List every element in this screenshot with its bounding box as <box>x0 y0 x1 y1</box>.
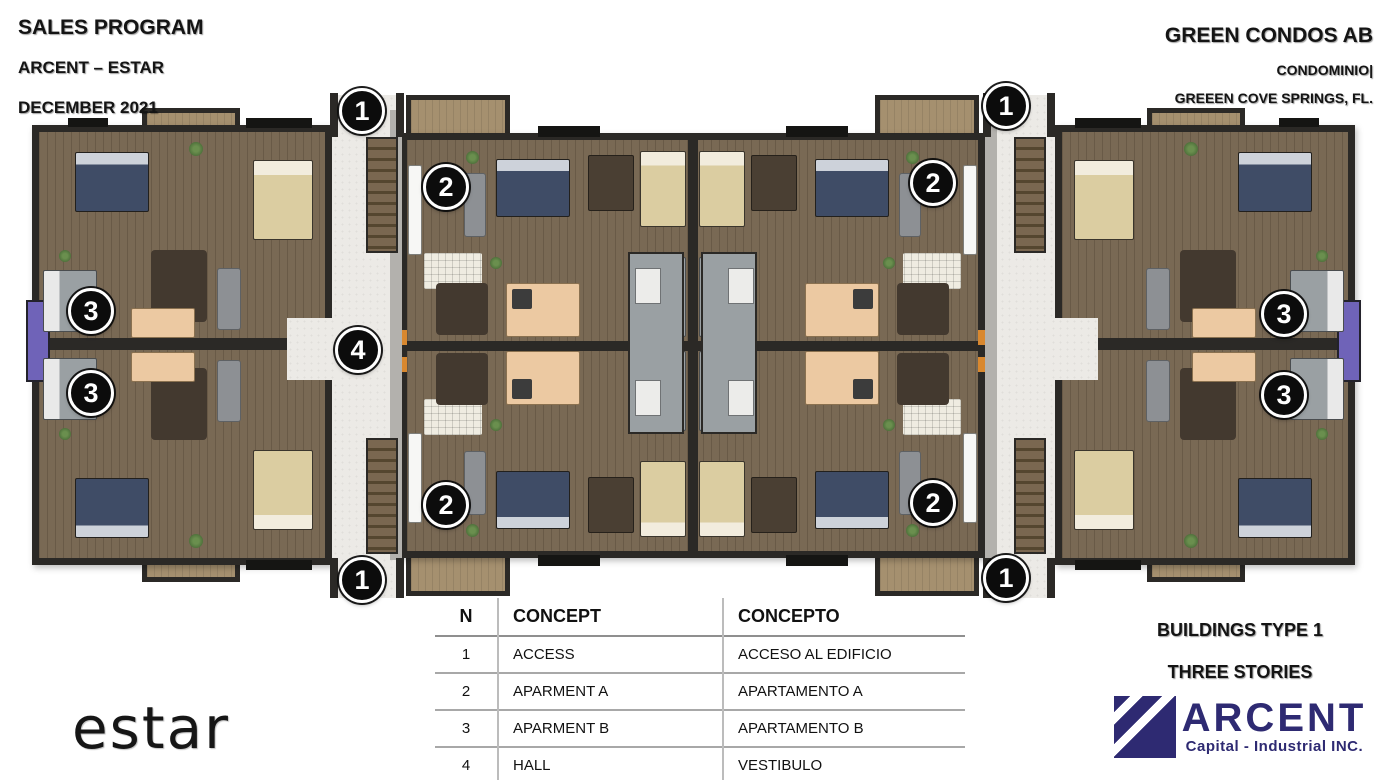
bath-core <box>628 252 684 434</box>
kitchen-counter <box>131 352 195 382</box>
ramp-strip <box>985 110 997 560</box>
closet <box>588 477 634 533</box>
legend-cell-concepto: APARTAMENTO A <box>722 683 965 700</box>
kitchen-counter <box>1192 352 1256 382</box>
bed-navy <box>815 159 889 217</box>
plan-marker-1: 1 <box>339 88 385 134</box>
stairs <box>1014 438 1046 554</box>
legend-cell-concept: APARMENT B <box>497 720 722 737</box>
plan-marker-3: 3 <box>68 370 114 416</box>
washer <box>635 268 661 304</box>
legend-row: 1 ACCESS ACCESO AL EDIFICIO <box>435 637 965 674</box>
plant-icon <box>59 428 71 440</box>
awning <box>786 126 848 137</box>
location-label: GREEEN COVE SPRINGS, FL. <box>1175 90 1373 106</box>
awning <box>1075 560 1141 570</box>
wall-stub <box>330 558 338 598</box>
condominio-label: CONDOMINIO| <box>1277 62 1373 78</box>
balcony <box>875 552 979 596</box>
sofa <box>217 360 241 422</box>
page: 1122334332211 SALES PROGRAM ARCENT – EST… <box>0 0 1387 780</box>
bed-navy <box>75 478 149 538</box>
wall-stub <box>396 558 404 598</box>
plant-icon <box>906 151 919 164</box>
plant-icon <box>59 250 71 262</box>
plan-marker-1: 1 <box>339 557 385 603</box>
arcent-logo-tagline: Capital - Industrial INC. <box>1186 738 1367 755</box>
stories-label: THREE STORIES <box>1100 662 1380 683</box>
plan-marker-2: 2 <box>423 482 469 528</box>
wardrobe <box>408 165 422 255</box>
bed-cream <box>1074 160 1134 240</box>
awning <box>786 555 848 566</box>
awning <box>538 126 600 137</box>
plant-icon <box>883 257 895 269</box>
wall-stub <box>1047 93 1055 137</box>
sofa <box>217 268 241 330</box>
legend-header-row: N CONCEPT CONCEPTO <box>435 598 965 637</box>
arcent-estar-subtitle: ARCENT – ESTAR <box>18 58 164 78</box>
plant-icon <box>189 142 203 156</box>
balcony <box>406 552 510 596</box>
awning <box>538 555 600 566</box>
kitchen-counter <box>131 308 195 338</box>
date-label: DECEMBER 2021 <box>18 98 158 118</box>
column-divider <box>497 598 499 780</box>
legend-cell-n: 3 <box>435 720 497 737</box>
legend-header-n: N <box>435 606 497 627</box>
bath-core <box>701 252 757 434</box>
arcent-logo-icon <box>1114 696 1176 758</box>
legend-cell-concept: APARMENT A <box>497 683 722 700</box>
dining-table <box>436 353 488 405</box>
plant-icon <box>490 419 502 431</box>
washer <box>728 268 754 304</box>
legend-cell-concept: ACCESS <box>497 646 722 663</box>
wardrobe <box>408 433 422 523</box>
stove <box>853 289 873 309</box>
arcent-logo-name: ARCENT <box>1182 700 1367 736</box>
legend-row: 2 APARMENT A APARTAMENTO A <box>435 674 965 711</box>
sofa <box>1146 268 1170 330</box>
plan-marker-2: 2 <box>910 480 956 526</box>
bed-cream <box>699 461 745 537</box>
bed-cream <box>699 151 745 227</box>
arcent-logo: ARCENT Capital - Industrial INC. <box>1100 696 1380 758</box>
plant-icon <box>1184 142 1198 156</box>
awning <box>246 118 312 128</box>
plant-icon <box>490 257 502 269</box>
plant-icon <box>466 151 479 164</box>
plant-icon <box>906 524 919 537</box>
plan-marker-3: 3 <box>1261 291 1307 337</box>
apartment-b-unit <box>1062 352 1348 558</box>
column-divider <box>722 598 724 780</box>
stairs <box>1014 137 1046 253</box>
wardrobe <box>963 433 977 523</box>
legend-header-concept: CONCEPT <box>497 606 722 627</box>
bed-navy <box>1238 478 1312 538</box>
legend-header-concepto: CONCEPTO <box>722 606 965 627</box>
closet <box>751 155 797 211</box>
dining-table <box>436 283 488 335</box>
washer <box>635 380 661 416</box>
buildings-type-label: BUILDINGS TYPE 1 <box>1100 620 1380 641</box>
plant-icon <box>1316 250 1328 262</box>
legend-cell-n: 4 <box>435 757 497 774</box>
bed-navy <box>1238 152 1312 212</box>
bed-cream <box>640 461 686 537</box>
wall-stub <box>396 93 404 137</box>
stove <box>512 379 532 399</box>
legend-cell-n: 1 <box>435 646 497 663</box>
sales-program-title: SALES PROGRAM <box>18 16 204 40</box>
unit-divider-wall <box>36 338 328 350</box>
dining-table <box>897 283 949 335</box>
legend-table: N CONCEPT CONCEPTO 1 ACCESS ACCESO AL ED… <box>435 598 965 780</box>
plan-marker-3: 3 <box>1261 372 1307 418</box>
bed-navy <box>496 471 570 529</box>
plant-icon <box>1316 428 1328 440</box>
kitchen-counter <box>1192 308 1256 338</box>
closet <box>588 155 634 211</box>
legend-cell-concept: HALL <box>497 757 722 774</box>
plan-marker-2: 2 <box>910 160 956 206</box>
awning <box>246 560 312 570</box>
bed-navy <box>496 159 570 217</box>
plan-marker-1: 1 <box>983 83 1029 129</box>
plan-marker-2: 2 <box>423 164 469 210</box>
bed-cream <box>253 450 313 530</box>
plant-icon <box>1184 534 1198 548</box>
awning <box>68 118 108 127</box>
stairs <box>366 438 398 554</box>
wall-stub <box>330 93 338 137</box>
plan-marker-3: 3 <box>68 288 114 334</box>
stove <box>512 289 532 309</box>
footer-right: BUILDINGS TYPE 1 THREE STORIES ARCENT Ca… <box>1100 620 1380 758</box>
plant-icon <box>883 419 895 431</box>
legend-row: 3 APARMENT B APARTAMENTO B <box>435 711 965 748</box>
plant-icon <box>189 534 203 548</box>
estar-logo: estar <box>72 694 230 762</box>
walkway-notch <box>287 318 337 380</box>
legend-cell-n: 2 <box>435 683 497 700</box>
legend-row: 4 HALL VESTIBULO <box>435 748 965 780</box>
closet <box>751 477 797 533</box>
stairs <box>366 137 398 253</box>
walkway-notch <box>1050 318 1098 380</box>
dining-table <box>897 353 949 405</box>
legend-cell-concepto: ACCESO AL EDIFICIO <box>722 646 965 663</box>
bed-navy <box>815 471 889 529</box>
wardrobe <box>963 165 977 255</box>
bed-navy <box>75 152 149 212</box>
awning <box>1075 118 1141 128</box>
awning <box>1279 118 1319 127</box>
bed-cream <box>640 151 686 227</box>
sofa <box>1146 360 1170 422</box>
stove <box>853 379 873 399</box>
project-title: GREEN CONDOS AB <box>1165 24 1373 48</box>
wall-stub <box>1047 558 1055 598</box>
washer <box>728 380 754 416</box>
plan-marker-1: 1 <box>983 555 1029 601</box>
unit-divider-wall <box>1059 338 1351 350</box>
plan-marker-4: 4 <box>335 327 381 373</box>
legend-cell-concepto: VESTIBULO <box>722 757 965 774</box>
legend-cell-concepto: APARTAMENTO B <box>722 720 965 737</box>
bed-cream <box>253 160 313 240</box>
plant-icon <box>466 524 479 537</box>
bed-cream <box>1074 450 1134 530</box>
